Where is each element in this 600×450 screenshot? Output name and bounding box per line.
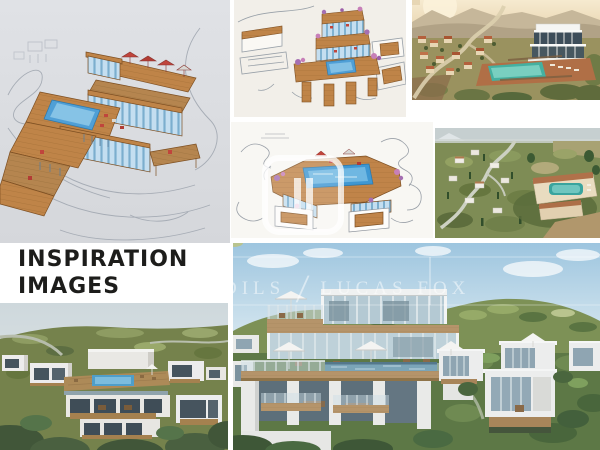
panel-hand-sketch-villa-large [0, 0, 230, 243]
sketch-pool-deck-graphic [231, 122, 433, 238]
sketch-villa-large-graphic [0, 0, 230, 243]
illustration-graphic [412, 0, 600, 107]
paper-margin [412, 100, 600, 107]
title-line-2: IMAGES [18, 273, 228, 300]
sketch-terraces-graphic [234, 0, 406, 117]
inspiration-moodboard: INSPIRATION IMAGES [0, 0, 600, 450]
panel-render-cube-villas [0, 303, 228, 450]
panel-hand-sketch-colored-pool-deck [231, 122, 433, 238]
title-line-1: INSPIRATION [18, 246, 228, 273]
panel-illustration-hillside-villa [412, 0, 600, 107]
panel-aerial-photo-hillside [435, 128, 600, 238]
panel-render-main-villa: DILS / LUCAS FOX [233, 243, 600, 450]
main-villa-graphic [233, 243, 600, 450]
panel-hand-sketch-terraces [234, 0, 406, 117]
logo-watermark [265, 158, 341, 232]
cube-villas-graphic [0, 303, 228, 450]
page-title: INSPIRATION IMAGES [18, 246, 228, 300]
aerial-photo-graphic [435, 128, 600, 238]
